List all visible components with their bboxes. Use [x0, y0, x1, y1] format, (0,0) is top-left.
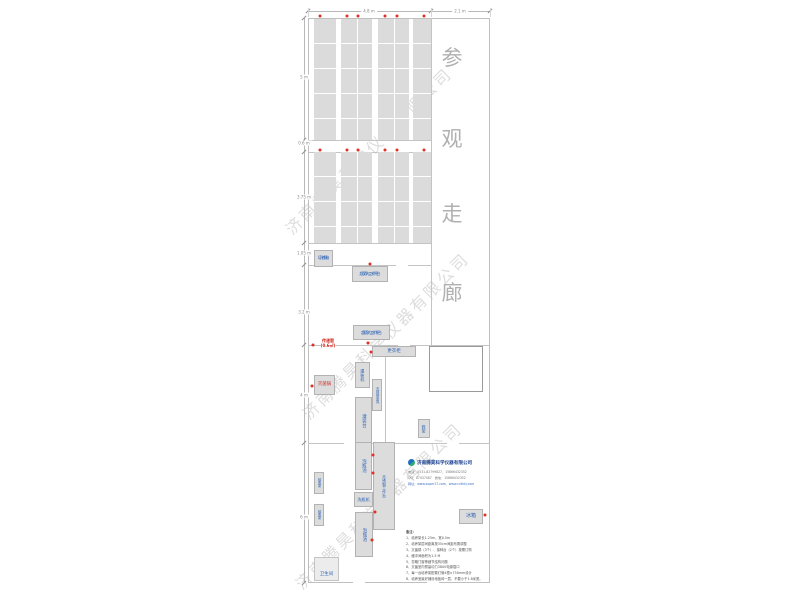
dimension-label-top: 2.1 m [452, 9, 468, 14]
company-contact-line: QQ：87437487 微信：15866432352 [408, 475, 466, 480]
company-logo-icon [408, 459, 415, 466]
power-dot [319, 15, 322, 18]
interior-wall [385, 345, 386, 443]
door-opening [396, 264, 408, 267]
company-info-block: 济南腾昊科学仪器有限公司 电话：0531-82799827、1586643235… [407, 456, 469, 488]
dimension-line-left [304, 18, 305, 583]
equipment-label-line: 培养箱 [318, 256, 329, 261]
power-dot [311, 385, 314, 388]
culture-rack [378, 19, 409, 140]
power-dot [319, 149, 322, 152]
dimension-label-left: 3.2 m [296, 310, 312, 315]
interior-wall [308, 443, 490, 444]
plan-layer: 济南腾昊科学仪器有限公司济南腾昊科学仪器有限公司济南腾昊科学仪器有限公司参观走廊… [0, 0, 800, 600]
culture-rack [413, 19, 431, 140]
equipment-soaking-pool-1: 泡瓶池 [355, 442, 372, 490]
rack-divider [394, 19, 395, 140]
power-dot [370, 351, 373, 354]
power-dot [367, 342, 370, 345]
equipment-toilet: 卫生间 [314, 568, 339, 581]
dimension-label-left: 0.6 m [296, 141, 312, 146]
power-dot [312, 344, 315, 347]
power-dot [396, 149, 399, 152]
dimension-extension [490, 8, 491, 17]
interior-wall [308, 140, 431, 141]
culture-rack [378, 152, 409, 243]
equipment-wardrobe: 更衣柜 [372, 346, 416, 357]
power-dot [484, 514, 487, 517]
company-name: 济南腾昊科学仪器有限公司 [417, 460, 472, 466]
power-dot [396, 15, 399, 18]
equipment-clean-bench-2: 双人水平超净工作台 [353, 325, 390, 340]
culture-rack [341, 152, 372, 243]
equipment-steel-worktable: 不锈钢工作台 [373, 442, 395, 530]
power-dot [423, 149, 426, 152]
power-dot [372, 472, 375, 475]
power-dot [384, 149, 387, 152]
equipment-bottle-rack-2: 晾瓶架 [314, 504, 324, 526]
culture-rack [314, 152, 336, 243]
power-dot [357, 15, 360, 18]
rack-divider [394, 152, 395, 243]
company-contact-line: 网址：www.super17.com、www.cnthkj.com [408, 481, 474, 486]
equipment-soaking-pool-2: 泡瓶池 [355, 512, 373, 557]
dimension-label-left: 6 m [298, 515, 310, 520]
power-dot [346, 15, 349, 18]
dimension-label-left: 5 m [298, 75, 310, 80]
equipment-fridge: 冰箱 [459, 509, 483, 524]
equipment-label-line: 超净工作台 [361, 330, 382, 335]
equipment-label-line: 超净工作台 [360, 271, 381, 276]
equipment-steel-bench: 不锈钢条凳 [372, 379, 382, 411]
equipment-clean-bench-1: 双人水平超净工作台 [352, 266, 388, 282]
power-dot [346, 149, 349, 152]
power-dot [357, 149, 360, 152]
equipment-sterilizer-pot: 灭菌锅 [314, 375, 335, 395]
power-dot [374, 511, 377, 514]
rack-divider [357, 152, 358, 243]
dimension-label-top: 4.8 m [361, 9, 377, 14]
floor-plan-page: 济南腾昊科学仪器有限公司济南腾昊科学仪器有限公司济南腾昊科学仪器有限公司参观走廊… [0, 0, 800, 600]
equipment-bottle-rack-1: 晾瓶架 [314, 472, 324, 494]
equipment-light-incubator: 光照培养箱 [314, 250, 333, 267]
dimension-label-left: 3.75 m [295, 195, 313, 200]
buffer-room-outline [429, 346, 483, 392]
culture-rack [314, 19, 336, 140]
culture-rack [413, 152, 431, 243]
equipment-filling-machine: 灌装机 [355, 362, 370, 388]
dimension-extension [431, 8, 432, 17]
dimension-label-left: 4 m [298, 393, 310, 398]
interior-wall [431, 18, 432, 345]
dimension-label-left: 1.05 m [295, 251, 313, 256]
power-dot [372, 454, 375, 457]
dimension-extension [308, 8, 309, 17]
culture-rack [341, 19, 372, 140]
power-dot [369, 263, 372, 266]
power-dot [371, 539, 374, 542]
rack-divider [357, 19, 358, 140]
door-opening [353, 582, 365, 585]
interior-wall [308, 243, 431, 244]
company-contact-line: 电话：0531-82799827、15866432352 [408, 469, 467, 474]
equipment-shoe-rack: 鞋架 [418, 419, 430, 438]
room-label-line: (0.6㎡) [321, 343, 336, 348]
room-label-pass-window: 传递窗(0.6㎡) [321, 338, 336, 348]
power-dot [423, 15, 426, 18]
equipment-filling-table: 灌装台 [355, 397, 372, 445]
power-dot [384, 15, 387, 18]
door-opening [447, 442, 459, 445]
note-item: 8、培养室最好铺设地板砖一层，不要小于1.8米宽。 [406, 577, 490, 583]
equipment-bottle-washer: 洗瓶机 [354, 492, 373, 507]
notes-block: 备注： 1、培养架长1.25m，宽0.5m2、培养架层间距离按35cm间距布置调… [406, 530, 490, 583]
